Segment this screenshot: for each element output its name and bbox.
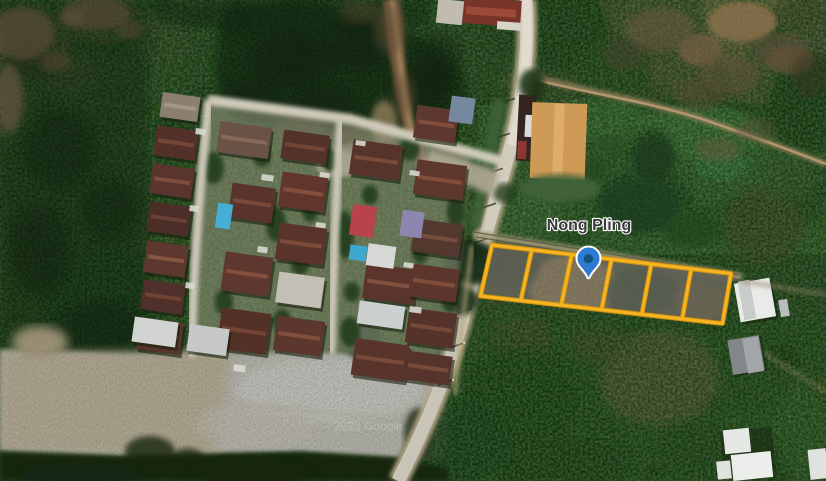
svg-text:2023 Google: 2023 Google bbox=[334, 419, 403, 433]
svg-text:Nong Pling: Nong Pling bbox=[547, 217, 631, 234]
